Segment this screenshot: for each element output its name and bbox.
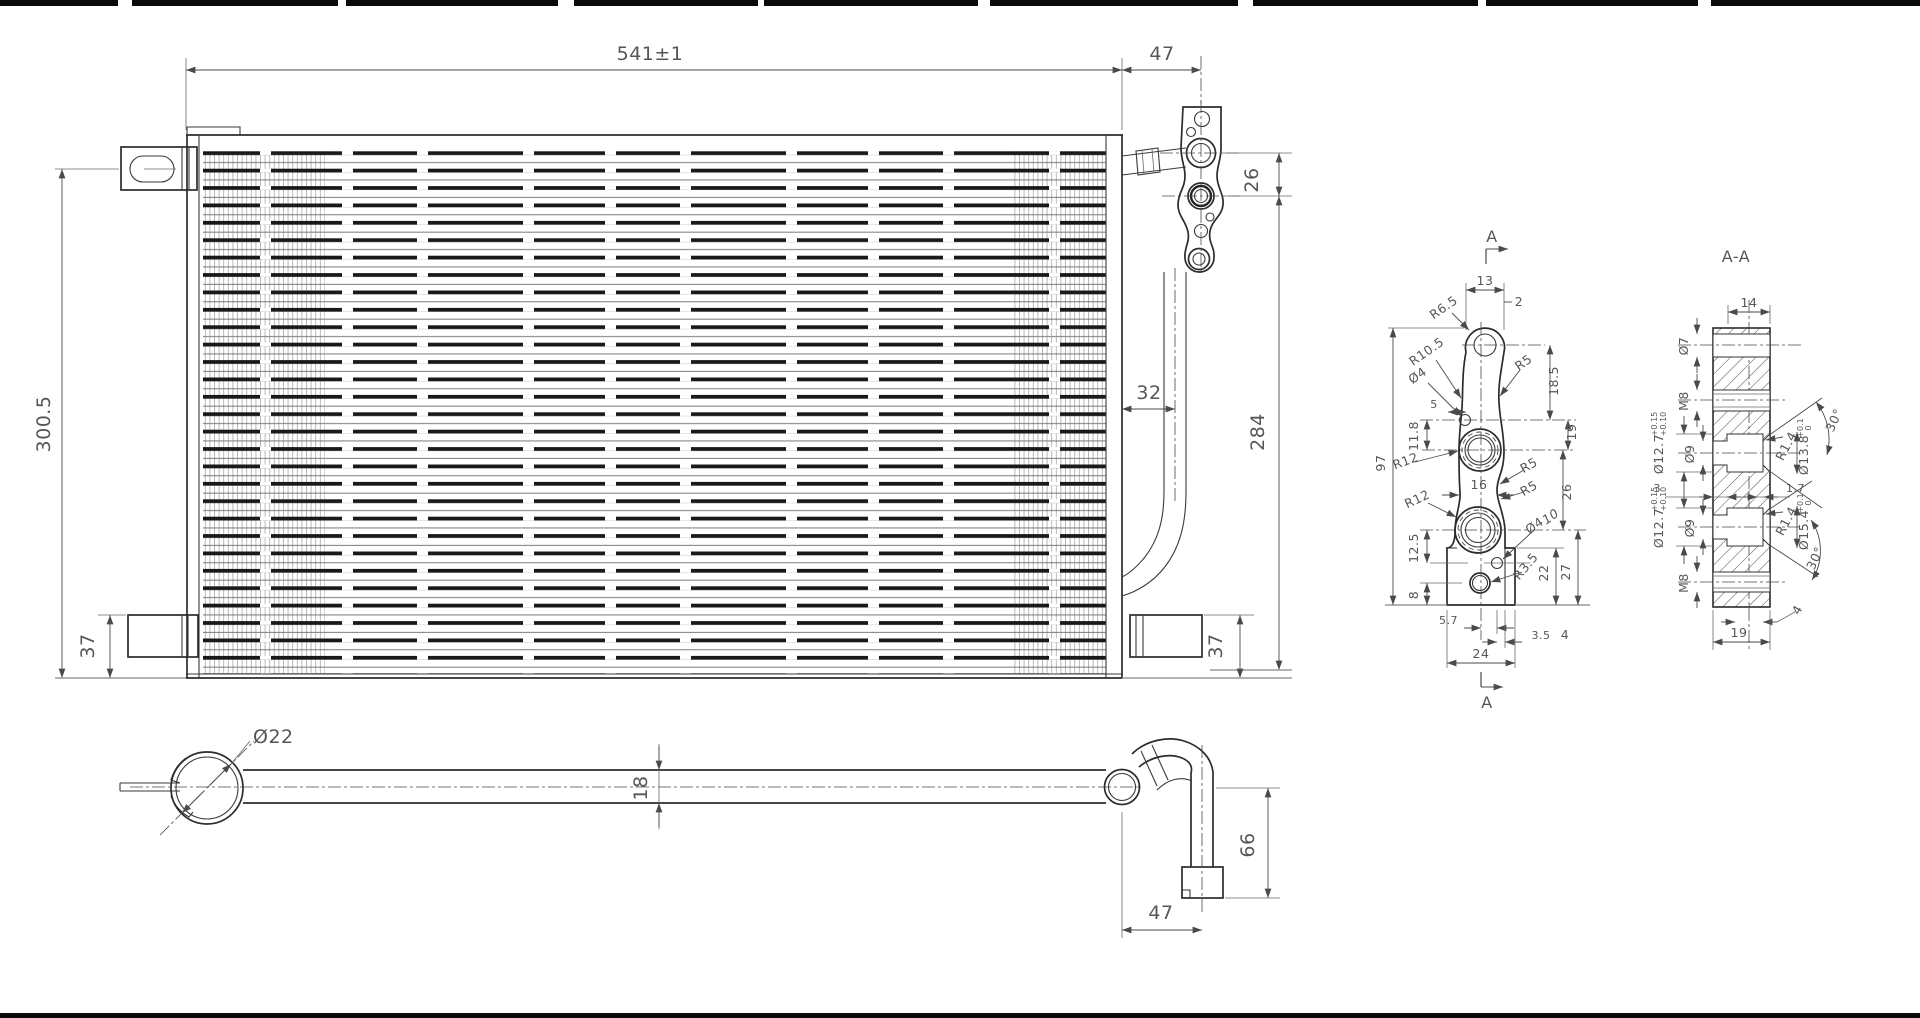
mount-hole [1195, 112, 1210, 127]
bottom-hole [1189, 249, 1210, 270]
dim-main-width: 541±1 [617, 43, 684, 65]
dim-wall4: 4 [1788, 602, 1805, 617]
engineering-drawing: 541±1 47 26 284 32 300.5 37 37 [0, 0, 1920, 1018]
scan-artifact-top [0, 0, 1920, 6]
dim-14: 14 [1741, 295, 1758, 310]
bottom-dimensions: Ø22 18 66 47 [182, 726, 1280, 938]
dim-cb-1: Ø12.7 [1651, 434, 1666, 474]
dim-seat-1-tol-lo: 0 [1804, 425, 1813, 430]
dim-r105: R10.5 [1406, 334, 1447, 369]
dim-125: 12.5 [1406, 533, 1421, 563]
dim-bracket-right: 37 [1205, 633, 1227, 658]
dim-185: 18.5 [1546, 366, 1561, 396]
section-marker-bottom: A [1481, 693, 1492, 712]
scan-artifact-bottom [0, 1013, 1920, 1018]
dim-tube-dia: Ø22 [253, 726, 294, 748]
dim-bracket-left: 37 [77, 633, 99, 658]
dim-r12b: R12 [1402, 487, 1432, 512]
dim-r65: R6.5 [1427, 292, 1461, 322]
detail-a-body [1420, 322, 1586, 640]
dim-cb-2-tol-hi: +0.15 [1650, 487, 1659, 512]
dim-height-total: 300.5 [33, 396, 55, 453]
dim-22: 22 [1536, 565, 1551, 582]
dim-hole7: Ø7 [1676, 337, 1691, 356]
dim-bracket-offset: 47 [1149, 43, 1174, 65]
bracket-top-left [121, 147, 197, 190]
dim-13: 13 [1477, 273, 1494, 288]
dim-5: 5 [1430, 398, 1438, 411]
section-marker-top: A [1486, 227, 1497, 246]
dim-27: 27 [1558, 564, 1573, 581]
dim-r5a: R5 [1517, 454, 1540, 476]
detail-a-view: A A [1373, 227, 1590, 712]
condenser-core [186, 127, 1123, 678]
dim-land17: 1.7 [1786, 482, 1805, 495]
dim-angle-1: 30° [1822, 406, 1846, 434]
dim-8: 8 [1406, 591, 1421, 599]
dim-m8-bot: M8 [1676, 573, 1691, 593]
bracket-bottom-right [1130, 615, 1202, 657]
dim-drop: 66 [1237, 832, 1259, 857]
dim-pipe-offset: 32 [1136, 382, 1161, 404]
dim-19: 19 [1564, 424, 1579, 441]
inlet-stub [1122, 148, 1186, 175]
section-aa-view: A-A [1650, 247, 1846, 652]
drawing-page: 541±1 47 26 284 32 300.5 37 37 [0, 0, 1920, 1018]
dim-cb-2-tol-lo: +0.10 [1659, 487, 1668, 512]
dim-m8-top: M8 [1676, 391, 1691, 411]
section-title: A-A [1722, 247, 1750, 266]
bracket-bottom-left [128, 615, 198, 657]
dim-end-offset: 47 [1148, 902, 1173, 924]
dim-2: 2 [1515, 294, 1523, 309]
dim-height-right: 284 [1247, 413, 1269, 451]
dim-19-bottom: 19 [1731, 625, 1748, 640]
bottom-elbow [1132, 739, 1223, 912]
dim-r12a: R12 [1391, 449, 1421, 472]
dim-d4a: Ø4 [1405, 364, 1429, 387]
pin-hole [1187, 128, 1196, 137]
dim-118: 11.8 [1406, 421, 1421, 451]
dim-4: 4 [1561, 627, 1569, 642]
dim-seat-2: Ø15.4 [1796, 510, 1811, 550]
dim-seat-2-tol-lo: 0 [1804, 500, 1813, 505]
dim-bore-1: Ø9 [1682, 445, 1697, 464]
return-pipe [1122, 268, 1186, 596]
port-plate [1160, 100, 1242, 276]
dim-tube-height: 18 [630, 775, 652, 800]
dim-24: 24 [1473, 646, 1490, 661]
dim-cb-1-tol-lo: +0.10 [1659, 412, 1668, 437]
bottom-view: Ø22 18 66 47 [120, 726, 1280, 938]
dim-bore-2: Ø9 [1682, 519, 1697, 538]
main-view: 541±1 47 26 284 32 300.5 37 37 [33, 43, 1292, 678]
dim-97: 97 [1373, 455, 1388, 472]
dim-cb-1-tol-hi: +0.15 [1650, 412, 1659, 437]
dim-r5b: R5 [1517, 477, 1540, 499]
dim-cb-2: Ø12.7 [1651, 508, 1666, 548]
dim-57: 5.7 [1439, 614, 1458, 627]
dim-seat-1: Ø13.8 [1796, 435, 1811, 475]
dim-26: 26 [1559, 484, 1574, 501]
pin-hole-2 [1206, 213, 1214, 221]
dim-port-gap: 26 [1241, 167, 1263, 192]
dim-r5t: R5 [1512, 351, 1535, 373]
dim-16: 16 [1471, 477, 1488, 492]
dim-35: 3.5 [1532, 629, 1551, 642]
